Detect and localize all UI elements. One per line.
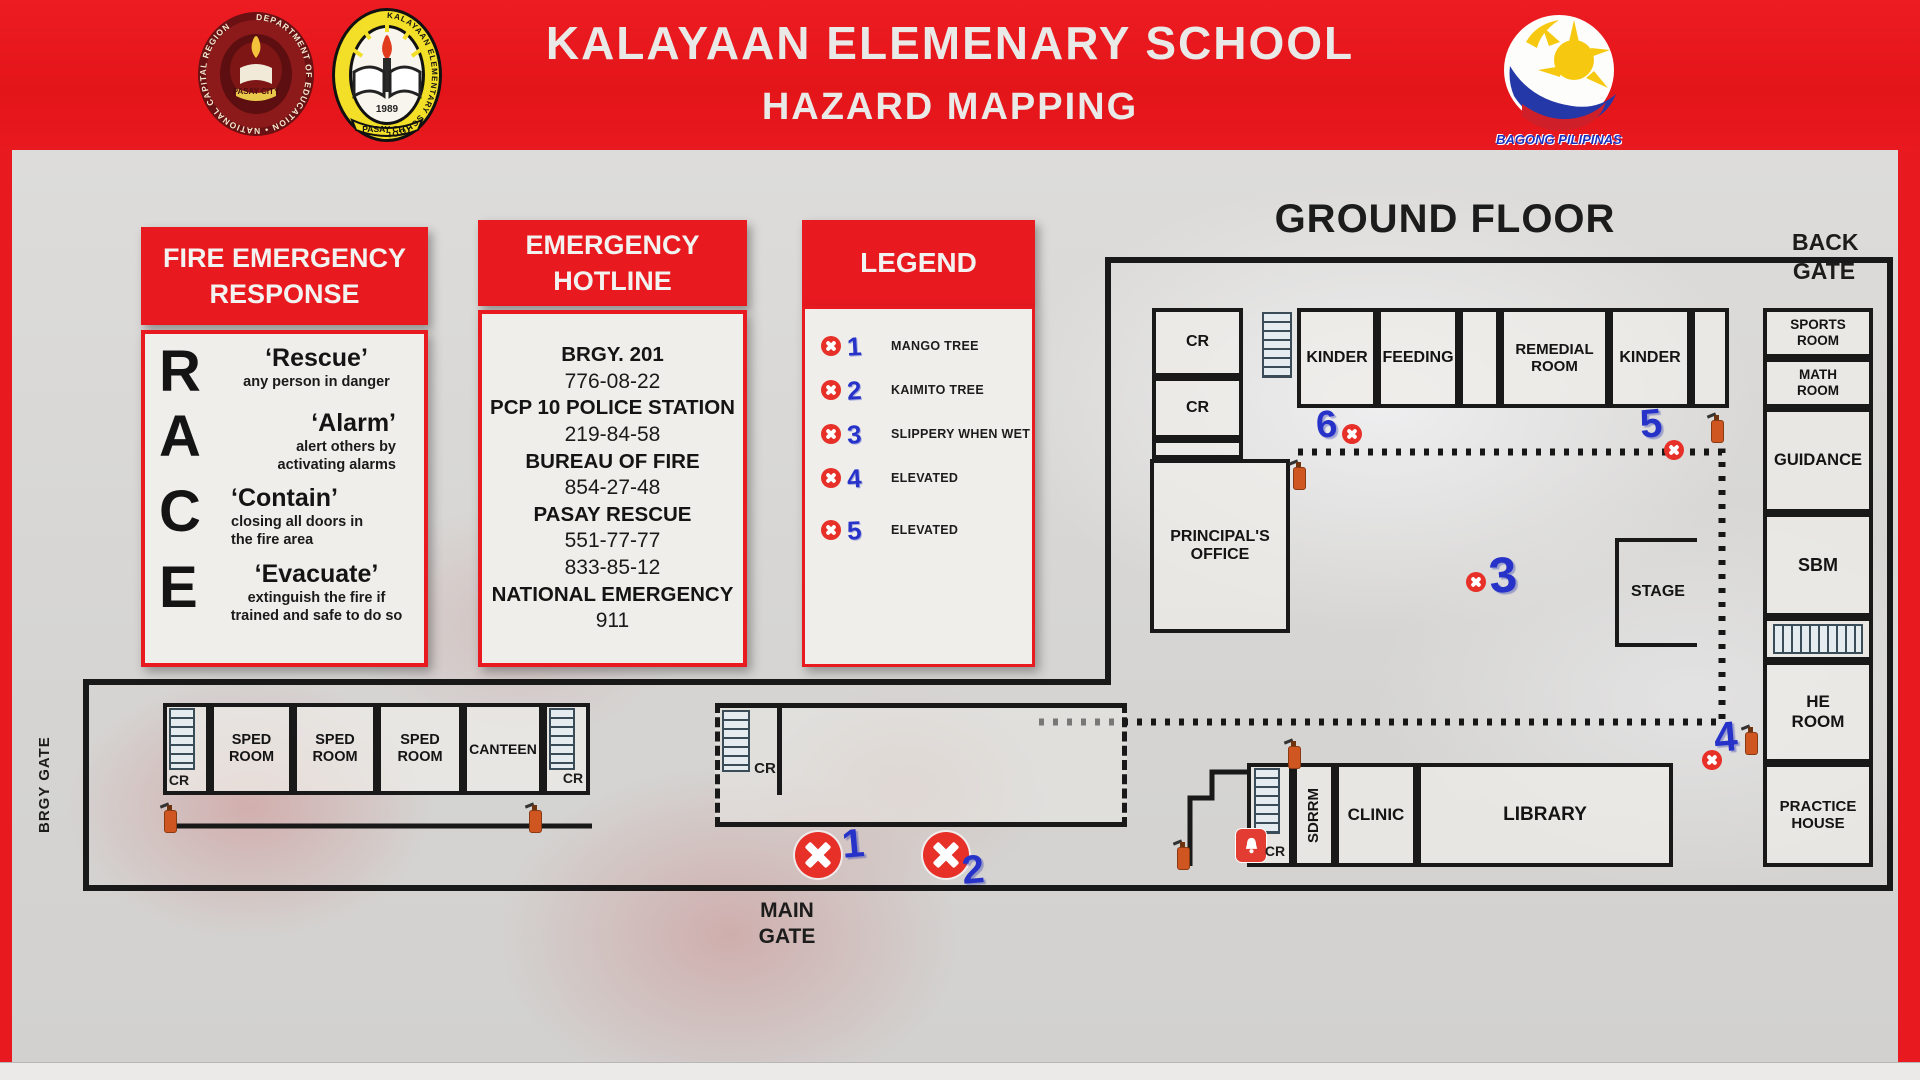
hotline-entry-number: 833-85-12 <box>482 555 743 582</box>
race-item-rescue: R ‘Rescue’ any person in danger <box>159 344 418 399</box>
legend-label: ELEVATED <box>891 523 958 537</box>
x-circle-icon <box>821 336 841 356</box>
fire-response-title-line2: RESPONSE <box>209 276 359 312</box>
room-sports: SPORTS ROOM <box>1763 308 1873 358</box>
stairs-icon <box>1262 312 1292 378</box>
hotline-entry-name: PASAY RESCUE <box>482 502 743 528</box>
floor-title: GROUND FLOOR <box>1240 194 1650 244</box>
race-item-evacuate: E ‘Evacuate’ extinguish the fire if trai… <box>159 560 418 625</box>
room-label: SPORTS ROOM <box>1783 317 1853 348</box>
room-corridor <box>1459 308 1500 408</box>
room-stage: STAGE <box>1615 538 1697 647</box>
deped-seal-logo: DEPARTMENT OF EDUCATION • NATIONAL CAPIT… <box>196 10 316 138</box>
room-remedial: REMEDIAL ROOM <box>1500 308 1609 408</box>
bagong-pilipinas-caption: BAGONG PILIPINAS <box>1488 132 1630 147</box>
fire-extinguisher-icon <box>1176 841 1189 868</box>
fire-response-header: FIRE EMERGENCY RESPONSE <box>141 227 428 325</box>
room-label: KINDER <box>1306 349 1367 367</box>
legend-number: 5 <box>846 514 878 547</box>
legend-panel: 1 MANGO TREE 2 KAIMITO TREE 3 SLIPPERY W… <box>802 306 1035 667</box>
room-sbm: SBM <box>1763 513 1873 617</box>
legend-number: 4 <box>846 462 878 495</box>
room-empty <box>1152 439 1243 459</box>
room-label: PRINCIPAL'S OFFICE <box>1166 528 1274 565</box>
room-practice-house: PRACTICE HOUSE <box>1763 763 1873 867</box>
room-label: SDRRM <box>1305 788 1322 843</box>
room-label: MATH ROOM <box>1788 367 1848 398</box>
race-letter: R <box>159 344 223 399</box>
fire-extinguisher-icon <box>1287 740 1300 767</box>
x-circle-icon <box>795 832 841 878</box>
hotline-entry-name: PCP 10 POLICE STATION <box>482 395 743 421</box>
race-word: ‘Alarm’ <box>223 409 396 438</box>
room-label: GUIDANCE <box>1774 451 1862 470</box>
legend-label: ELEVATED <box>891 471 958 485</box>
fire-extinguisher-icon <box>163 804 176 831</box>
deped-banner-text: PASAY CITY <box>233 87 280 96</box>
hotline-title-line1: EMERGENCY <box>525 227 699 263</box>
hazard-marker-4: 4 <box>1712 715 1739 759</box>
room-label: CR <box>1186 333 1209 351</box>
room-label: SBM <box>1798 555 1838 576</box>
room-canteen: CANTEEN <box>463 703 543 795</box>
room-clinic: CLINIC <box>1335 763 1417 867</box>
partition-wall <box>777 703 782 795</box>
hotline-entry-number: 219-84-58 <box>482 422 743 449</box>
hotline-entry-number: 854-27-48 <box>482 475 743 502</box>
stairs-icon <box>1773 624 1863 654</box>
hotline-panel: BRGY. 201 776-08-22 PCP 10 POLICE STATIO… <box>478 310 747 667</box>
room-label: CLINIC <box>1348 805 1405 825</box>
room-label: CANTEEN <box>469 741 537 757</box>
back-gate-label: BACK GATE <box>1772 228 1876 286</box>
legend-item: 1 MANGO TREE <box>821 331 1032 361</box>
room-guidance: GUIDANCE <box>1763 408 1873 513</box>
school-seal-logo: 1989 PASAY CITY KALAYAAN ELEMENTARY SCHO… <box>330 6 444 144</box>
x-circle-icon <box>821 424 841 444</box>
fire-extinguisher-icon <box>1710 414 1723 441</box>
race-letter: E <box>159 560 223 625</box>
race-letter: C <box>159 484 223 549</box>
x-circle-icon <box>1664 440 1684 460</box>
main-gate-text: MAIN GATE <box>757 898 817 951</box>
race-item-contain: C ‘Contain’ closing all doors in the fir… <box>159 484 418 549</box>
room-kinder-1: KINDER <box>1297 308 1377 408</box>
stairs-icon <box>1254 768 1280 834</box>
room-kinder-2: KINDER <box>1609 308 1691 408</box>
legend-item: 3 SLIPPERY WHEN WET <box>821 419 1032 449</box>
room-label: KINDER <box>1619 349 1680 367</box>
bottom-strip <box>0 1062 1920 1080</box>
fire-extinguisher-icon <box>528 804 541 831</box>
legend-number: 2 <box>846 374 878 407</box>
hotline-entry-name: NATIONAL EMERGENCY <box>482 582 743 608</box>
hotline-entry-number: 776-08-22 <box>482 369 743 396</box>
hotline-entry-name: BRGY. 201 <box>482 342 743 368</box>
room-math: MATH ROOM <box>1763 358 1873 408</box>
hazard-marker-5: 5 <box>1638 403 1664 445</box>
cr-right-label: CR <box>558 770 588 788</box>
race-desc: alert others by activating alarms <box>246 438 396 474</box>
fire-response-title-line1: FIRE EMERGENCY <box>163 240 406 276</box>
school-year-text: 1989 <box>376 104 399 115</box>
legend-header: LEGEND <box>802 220 1035 306</box>
left-red-frame <box>0 150 12 1062</box>
main-gate-label: MAIN GATE <box>745 898 829 951</box>
race-word: ‘Rescue’ <box>223 344 410 373</box>
room-library: LIBRARY <box>1417 763 1673 867</box>
room-sped-1: SPED ROOM <box>210 703 293 795</box>
hazard-map-poster: KALAYAAN ELEMENARY SCHOOL HAZARD MAPPING… <box>0 0 1920 1080</box>
page-subtitle: HAZARD MAPPING <box>400 86 1500 129</box>
brgy-gate-label: BRGY GATE <box>36 720 55 850</box>
legend-label: SLIPPERY WHEN WET <box>891 427 1030 441</box>
room-cr-top: CR <box>1152 308 1243 377</box>
fire-extinguisher-icon <box>1292 461 1305 488</box>
room-sped-3: SPED ROOM <box>377 703 463 795</box>
legend-item: 4 ELEVATED <box>821 463 1032 493</box>
room-cr-mid: CR <box>1152 377 1243 439</box>
legend-item: 2 KAIMITO TREE <box>821 375 1032 405</box>
race-desc: extinguish the fire if trained and safe … <box>223 589 410 625</box>
room-he: HE ROOM <box>1763 661 1873 763</box>
hotline-entry-number: 551-77-77 <box>482 528 743 555</box>
x-circle-icon <box>1342 424 1362 444</box>
hazard-marker-3: 3 <box>1487 549 1519 601</box>
room-principals-office: PRINCIPAL'S OFFICE <box>1150 459 1290 633</box>
room-label: LIBRARY <box>1503 804 1587 826</box>
race-desc: any person in danger <box>223 373 410 391</box>
legend-number: 1 <box>846 330 878 363</box>
room-label: REMEDIAL ROOM <box>1509 341 1601 376</box>
room-feeding: FEEDING <box>1377 308 1459 408</box>
bagong-pilipinas-logo: BAGONG PILIPINAS <box>1496 8 1622 150</box>
x-circle-icon <box>1466 572 1486 592</box>
x-circle-icon <box>821 380 841 400</box>
room-corridor <box>1691 308 1729 408</box>
hazard-marker-1: 1 <box>840 823 866 865</box>
x-circle-icon <box>821 468 841 488</box>
room-label: HE ROOM <box>1790 692 1846 731</box>
legend-label: MANGO TREE <box>891 339 979 353</box>
cr-left-label: CR <box>164 772 194 790</box>
fire-extinguisher-icon <box>1744 726 1757 753</box>
legend-title: LEGEND <box>860 247 977 279</box>
legend-item: 5 ELEVATED <box>821 515 1032 545</box>
page-title: KALAYAAN ELEMENARY SCHOOL <box>400 16 1500 70</box>
cr-lower-label: CR <box>1260 843 1290 861</box>
hotline-entry-name: BUREAU OF FIRE <box>482 449 743 475</box>
race-letter: A <box>159 409 223 474</box>
room-sped-2: SPED ROOM <box>293 703 377 795</box>
cr-middle-label: CR <box>750 760 780 779</box>
room-label: FEEDING <box>1382 349 1453 367</box>
stairs-icon <box>722 710 750 772</box>
room-label: PRACTICE HOUSE <box>1776 798 1861 833</box>
x-circle-icon <box>821 520 841 540</box>
back-gate-text: BACK GATE <box>1792 228 1856 286</box>
room-sdrrm: SDRRM <box>1293 763 1335 867</box>
stairs-icon <box>549 708 575 770</box>
race-word: ‘Contain’ <box>231 484 410 513</box>
room-label: SPED ROOM <box>309 732 361 765</box>
hazard-marker-6: 6 <box>1314 405 1338 445</box>
hotline-entry-number: 911 <box>482 608 743 635</box>
hotline-title-line2: HOTLINE <box>553 263 672 299</box>
room-label: STAGE <box>1631 583 1685 601</box>
hazard-marker-2: 2 <box>960 849 986 891</box>
room-label: CR <box>1186 399 1209 417</box>
legend-number: 3 <box>846 418 878 451</box>
fire-response-panel: R ‘Rescue’ any person in danger A ‘Alarm… <box>141 330 428 667</box>
race-desc: closing all doors in the fire area <box>231 513 381 549</box>
legend-label: KAIMITO TREE <box>891 383 984 397</box>
room-label: SPED ROOM <box>226 732 278 765</box>
race-item-alarm: A ‘Alarm’ alert others by activating ala… <box>159 409 418 474</box>
right-red-frame <box>1898 150 1920 1062</box>
hotline-header: EMERGENCY HOTLINE <box>478 220 747 306</box>
room-label: SPED ROOM <box>394 732 446 765</box>
race-word: ‘Evacuate’ <box>223 560 410 589</box>
stairs-icon <box>169 708 195 770</box>
